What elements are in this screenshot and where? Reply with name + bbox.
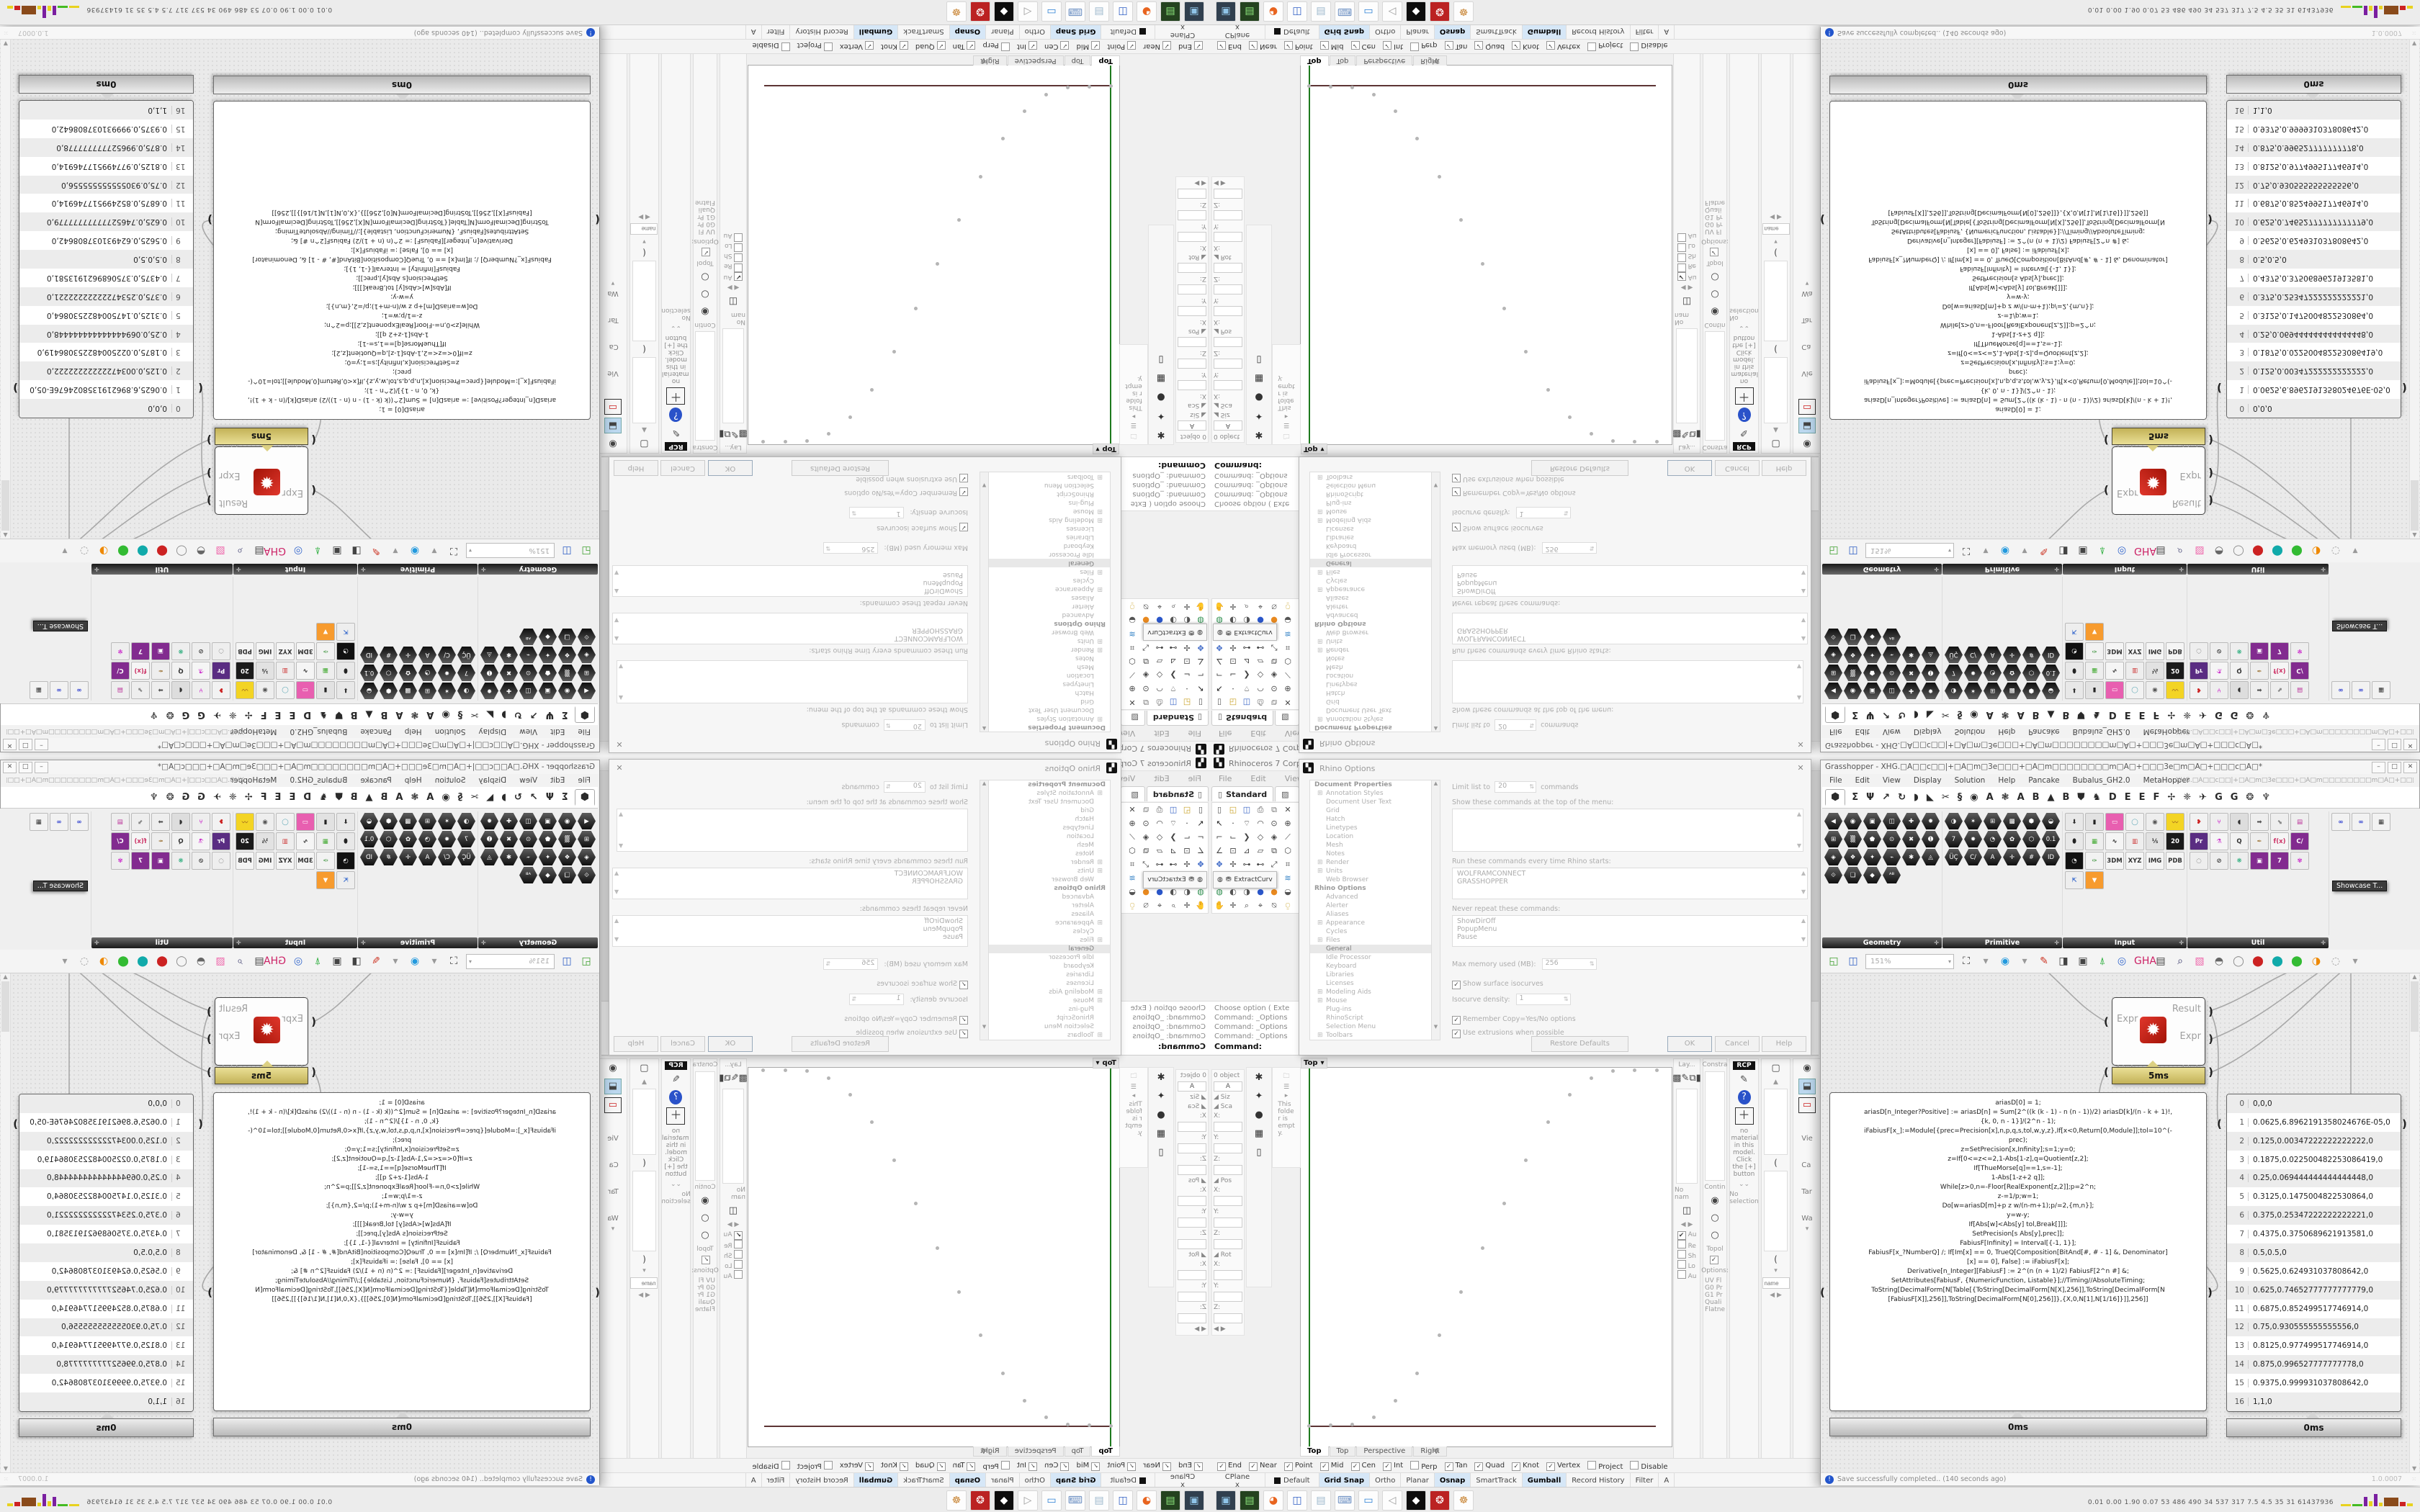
new-viewport-icon[interactable]: ✛ [1433,56,1439,64]
boxedit-item[interactable] [1214,380,1242,390]
expand-icon[interactable]: ⊞ [1096,789,1103,798]
layers-tool-icon[interactable]: ▩ [739,428,748,439]
tree-item[interactable]: Web Browser [989,628,1110,636]
chevrons-icon[interactable]: ⌄⌄ [1739,1181,1749,1188]
boxedit-item[interactable]: Y: [1178,371,1206,378]
gh-menu-item[interactable]: View [1883,727,1901,736]
component-icon[interactable]: ∿ [2105,662,2124,680]
viewport-point[interactable] [1590,432,1593,436]
boxedit-item[interactable]: ◢ Siz [1214,1094,1242,1101]
component-icon[interactable]: ▮ [316,813,335,831]
gh-category-tab[interactable]: ◗ [1912,708,1920,721]
component-icon[interactable]: PDB [2166,852,2184,870]
component-icon[interactable]: ID [2042,849,2060,865]
panel-icon[interactable]: ● [1154,1108,1168,1122]
tree-item[interactable]: Libraries [989,971,1110,979]
expand-icon[interactable]: ⊞ [1317,996,1324,1005]
component-icon[interactable]: ❥ [212,813,230,831]
component-icon[interactable]: ▣ [2250,642,2269,660]
tree-item[interactable]: Grid [989,697,1110,706]
rhino-tool-icon[interactable]: ◠ [1153,682,1166,695]
component-icon[interactable]: # [2022,849,2040,865]
boxedit-item[interactable] [1178,1196,1206,1206]
radio-icon[interactable]: ○ [1707,269,1723,284]
gh-category-tab[interactable]: ◣ [485,791,495,804]
viewport-point[interactable] [979,175,982,179]
never-repeat-command[interactable]: Pause [613,571,963,579]
component-icon[interactable]: 3DM [2105,642,2124,660]
rhino-tool-icon[interactable]: ⌐ [1213,831,1226,844]
gh-category-tab[interactable]: ↗ [1881,708,1891,721]
gh-category-tab[interactable]: ↗ [529,791,539,804]
data-row[interactable]: 130.8125,0.977499517746914,0 [2227,157,2401,176]
chevron-down-icon[interactable]: ▾ [1095,445,1099,453]
checkbox[interactable]: ✓ [1546,1462,1555,1471]
taskbar-app-icon[interactable]: ▤ [1311,1490,1331,1511]
osnap-toggle[interactable]: ✓Vertex [1546,1462,1580,1471]
component-icon[interactable]: 7 [457,831,475,847]
checkbox[interactable] [781,1461,790,1470]
rhino-menu-item[interactable]: File [1188,729,1201,739]
rhino-tool-icon[interactable]: ⤢ [1139,641,1152,654]
checkbox[interactable]: ✓ [865,42,874,50]
dropdown-icon[interactable]: ▾ [1774,238,1778,245]
rhino-tool-icon[interactable]: ◇ [1254,831,1267,844]
gh-menu-item[interactable]: File [578,727,591,736]
window-button[interactable]: □ [2388,762,2401,773]
rhino-tool-icon[interactable]: ✋ [1194,899,1207,912]
rhino-toolbar-tab[interactable]: ▨ [1121,786,1145,801]
component-icon[interactable]: ◀ [1824,683,1842,699]
data-row[interactable]: 30.1875,0.022500482253086419,0 [2227,343,2401,362]
data-panel[interactable]: 00,0,010.0625,6.8962191358024676E-05,020… [19,100,194,418]
component-icon[interactable]: ◈ [578,647,596,663]
gh-menu-item[interactable]: Display [478,727,506,736]
data-row[interactable]: 50.3125,0.1475004822530864,0 [19,306,193,325]
gh-category-tab[interactable]: G [181,708,192,721]
data-row[interactable]: 100.625,0.74652777777777779,0 [19,1281,193,1300]
rhino-tool-icon[interactable]: ∠ [1213,845,1226,858]
checkbox[interactable]: ✓ [865,1462,874,1471]
boxedit-item[interactable] [1178,189,1206,199]
tree-item[interactable]: ⊞Toolbars [1310,472,1431,481]
rhino-tool-icon[interactable]: ⤢ [1268,858,1281,871]
dropdown-icon[interactable]: ▾ [1948,548,1951,554]
rhino-toolbar-tab[interactable]: ▨ [1121,711,1145,726]
tree-item[interactable]: Linetypes [1310,824,1431,832]
save-icon[interactable]: ◫ [725,294,741,308]
tree-item[interactable]: Document Properties [1310,780,1431,789]
osnap-toggle[interactable]: ✓End [1178,1462,1203,1471]
component-icon[interactable]: ✒ [151,832,170,850]
checkbox[interactable]: ✓ [1474,42,1483,50]
radio-icon[interactable]: ○ [1707,1228,1723,1243]
name-input[interactable] [631,223,658,235]
window-button[interactable]: ✕ [3,762,17,773]
tree-item[interactable]: Location [1310,832,1431,841]
input-grip-link[interactable]: ( [2104,1066,2109,1079]
tree-item[interactable]: Mesh [1310,662,1431,671]
cancel-button[interactable]: Cancel [1715,460,1760,476]
data-panel-output-grip[interactable]: ) [2402,382,2407,395]
output-port-result[interactable]: Result [219,498,248,508]
checkbox[interactable]: ✓ [959,474,968,482]
viewport-point[interactable] [1329,1423,1332,1427]
component-icon[interactable]: ▣ [151,852,170,870]
viewport-point[interactable] [1415,137,1419,140]
monitor-icon[interactable]: ▢ [1768,436,1784,451]
expand-group-icon[interactable]: ✛ [481,937,486,948]
boxedit-item[interactable] [1178,1239,1206,1249]
component-icon[interactable]: # [2022,647,2040,663]
camera-icon[interactable]: ⬓ [604,1079,622,1094]
radio-icon[interactable]: ○ [697,1228,713,1243]
never-repeat-command[interactable]: ShowDirOff [1457,587,1807,595]
data-row[interactable]: 80.5,0.5,0 [19,250,193,269]
viewport-tab[interactable]: Top [1330,55,1356,66]
rhino-menu-item[interactable]: File [1219,774,1232,783]
boxedit-item[interactable]: 0 object [1214,433,1242,440]
component-icon[interactable]: ❏ [558,629,576,645]
data-panel-input-grip[interactable]: ( [2217,1117,2222,1130]
component-icon[interactable]: ◉ [558,813,576,829]
restore-defaults-button[interactable]: Restore Defaults [1531,1036,1628,1052]
gh-category-tab[interactable]: Σ [1850,791,1860,804]
osnap-toggle[interactable]: Perp [1410,1461,1437,1471]
boxedit-item[interactable] [1214,1122,1242,1132]
component-icon[interactable]: ◔ [336,852,355,870]
output-port-expr[interactable]: Expr [219,1031,241,1042]
boxedit-item[interactable]: ◢ Rot [1214,1251,1242,1259]
rhino-toolbar-tab[interactable]: ▯Standard [1147,711,1209,726]
component-icon[interactable]: ❥ [2190,813,2208,831]
tree-scrollbar[interactable]: ▲▼ [1431,780,1440,1040]
data-row[interactable]: 60.375,0.25347222222222221,0 [2227,287,2401,306]
gh-category-tab[interactable]: ↻ [513,708,524,721]
isocurve-density-input[interactable]: 1⇅ [849,994,904,1005]
osnap-toggle[interactable]: ✓Vertex [840,42,874,51]
rhino-tool-icon[interactable]: ⬡ [1126,654,1139,667]
tree-item[interactable]: Hatch [989,815,1110,824]
expand-group-icon[interactable]: ✛ [1934,564,1939,575]
dialog-titlebar[interactable]: ▚ Rhino Options [609,760,1121,777]
isocurves-checkbox-row[interactable]: ✓Show surface isocurves [614,523,968,532]
expand-icon[interactable]: ⊞ [1096,988,1103,996]
limit-input[interactable]: 20⇅ [884,719,926,731]
toolbar-icon[interactable]: ◨ [2056,544,2071,558]
component-icon[interactable]: 7 [1945,831,1963,847]
never-repeat-command[interactable]: Pause [613,933,963,941]
spinner-icon[interactable]: ⇅ [1529,722,1534,729]
input-grip-expr[interactable]: ( [2104,1015,2109,1028]
boxedit-item[interactable]: ◢ Pos [1178,328,1206,335]
boxedit-item[interactable]: ◢ Pos [1178,1177,1206,1184]
tree-item[interactable]: ⊞Appearance [989,919,1110,927]
ok-button[interactable]: OK [1667,460,1712,476]
checkbox[interactable]: ✓ [1351,1462,1360,1471]
taskbar-app-icon[interactable]: ❂ [1430,1,1450,22]
viewport-point[interactable] [1568,1093,1572,1097]
gh-category-tab[interactable]: ◣ [1925,708,1935,721]
checkbox[interactable]: ✓ [937,1462,946,1471]
component-icon[interactable]: ▮ [316,681,335,699]
component-icon[interactable]: ⟐ [578,867,596,883]
component-icon[interactable]: ❥ [2190,681,2208,699]
data-row[interactable]: 150.9375,0.999931037808642,0 [19,120,193,138]
tree-item[interactable]: Rhino Options [1310,884,1431,893]
component-icon[interactable]: ◒ [360,683,378,699]
panel-icon[interactable]: ● [1252,1108,1266,1122]
gh-titlebar[interactable]: Grasshopper - XHG.□A□□c□□|+□A□m□3e□□□+□A… [1,738,599,752]
tree-item[interactable]: Idle Processor [989,550,1110,559]
toolbar-icon[interactable]: ▾ [2348,954,2362,968]
component-icon[interactable]: ◫ [1883,813,1901,829]
expand-icon[interactable]: ⊞ [1317,858,1324,867]
viewport-point[interactable] [1001,137,1005,140]
component-icon[interactable]: ✶ [1964,683,1982,699]
checkbox[interactable] [734,1270,743,1279]
tree-item[interactable]: Notes [1310,850,1431,858]
component-icon[interactable]: ⬡ [380,665,398,681]
component-icon[interactable]: # [380,849,398,865]
boxedit-item[interactable]: ◢ Pos [1214,1177,1242,1184]
viewport-point[interactable] [784,1068,787,1072]
output-grip-expr[interactable]: ) [2208,467,2213,480]
gh-category-tab[interactable]: ❈ [2182,791,2192,804]
component-icon[interactable]: ✾ [111,642,130,660]
scrollbar-thumb[interactable] [1,981,9,1032]
taskbar-app-icon[interactable]: ▤ [1160,1,1180,22]
tree-item[interactable]: Web Browser [1310,628,1431,636]
radio-icon[interactable]: ◉ [1707,304,1723,318]
toolbar-icon[interactable]: ⌕ [233,544,247,558]
dialog-titlebar[interactable]: ▚ Rhino Options [1299,735,1811,752]
component-icon[interactable]: ⇱ [336,623,355,641]
component-icon[interactable]: ▼ [316,623,335,641]
rhino-tool-icon[interactable]: ⌐ [1194,668,1207,681]
rhino-tool-icon[interactable]: ⍉ [1268,600,1281,613]
panel-icon[interactable]: ✦ [1154,1089,1168,1104]
layers-tool-icon[interactable]: ⧉ [1689,1073,1695,1084]
pager[interactable]: ◀ ▶ [638,1292,650,1299]
component-icon[interactable]: C/ [111,662,130,680]
component-icon[interactable]: ➊ [480,831,498,847]
rhino-tool-icon[interactable]: ⧉ [1268,845,1281,858]
expand-icon[interactable]: ⊞ [1317,1031,1324,1040]
gh-menu-item[interactable]: Bubalus_GH2.0 [290,727,347,736]
component-icon[interactable]: ❖ [558,647,576,663]
component-icon[interactable]: ◔ [418,831,436,847]
boxedit-item[interactable]: X: [1178,392,1206,400]
gh-category-tab[interactable]: B [379,791,389,804]
viewport-point[interactable] [1372,93,1376,96]
viewport-tab[interactable]: Top [1091,55,1120,66]
checkbox[interactable] [1001,42,1010,51]
gh-menu-item[interactable]: File [1829,727,1842,736]
component-icon[interactable]: ᴬᴮ [519,867,537,883]
toolbar-icon[interactable]: ✎ [369,954,383,968]
layers-tool-icon[interactable]: ✎ [731,428,739,439]
never-repeat-command[interactable]: Pause [1457,571,1807,579]
color-wheel-icon[interactable]: ◉ [1799,1061,1815,1076]
checkbox[interactable] [781,42,790,51]
toolbar-icon[interactable]: ▤ [252,954,266,968]
gh-category-tab[interactable]: D [2107,708,2118,721]
osnap-toggle[interactable]: ✓Mid [1320,42,1344,51]
toolbar-icon[interactable]: ▾ [58,954,72,968]
taskbar-app-icon[interactable]: ◕ [1137,1,1157,22]
component-icon[interactable]: A [418,849,436,865]
save-file-icon[interactable]: ◫ [1846,544,1860,558]
viewport-point[interactable] [1307,85,1311,89]
rhino-tool-icon[interactable]: ◈ [1139,831,1152,844]
tree-item[interactable]: Cycles [989,576,1110,585]
data-row[interactable]: 00,0,0 [19,1094,193,1113]
component-icon[interactable]: ✚ [1902,683,1920,699]
tree-item[interactable]: Linetypes [1310,680,1431,688]
radio-icon[interactable]: ○ [1707,287,1723,301]
menu-icon[interactable]: ☰ [1131,1084,1137,1091]
osnap-toggle[interactable]: ✓Int [1383,1462,1403,1471]
rhino-tool-icon[interactable]: ⧉ [1139,804,1152,816]
component-icon[interactable]: ⬊ [2270,813,2289,831]
mathematica-component[interactable]: ( ( ) ) ) Expr Link Result Expr Link ✹ [2112,997,2205,1066]
component-icon[interactable]: ◔ [1984,831,2002,847]
layers-tool-icon[interactable]: ✎ [1681,1073,1689,1084]
tree-item[interactable]: Grid [1310,806,1431,815]
gh-canvas[interactable]: ( ( ) ) ) Expr Link Result Expr Link ✹ 5… [1821,40,2420,539]
toolbar-icon[interactable]: ▤ [2154,954,2168,968]
boxedit-item[interactable]: ◢ Pos [1214,328,1242,335]
rhino-tool-icon[interactable]: ✋ [1213,600,1226,613]
mathematica-component[interactable]: ( ( ) ) ) Expr Link Result Expr Link ✹ [2112,446,2205,515]
constraint-list[interactable] [695,1071,715,1181]
toolbar-icon[interactable]: ⬤ [2251,954,2265,968]
rhino-tool-icon[interactable]: ⊶ [1240,641,1253,654]
gh-category-tab[interactable]: A [2016,791,2026,804]
tree-item[interactable]: Plug-ins [989,1005,1110,1014]
rhino-tool-icon[interactable]: ≋ [1126,872,1139,885]
extract-curve-popup[interactable]: ◍ ⛃ ExtractCurv [1213,871,1277,888]
tree-item[interactable]: RhinoScript [989,1014,1110,1022]
component-icon[interactable]: ⊞ [1984,813,2002,829]
data-panel-output-grip[interactable]: ) [13,382,18,395]
tree-item[interactable]: Rhino Options [1310,619,1431,628]
gh-category-tab[interactable]: ✈ [212,708,223,721]
gh-category-tab[interactable]: § [1956,791,1964,804]
component-icon[interactable]: ✶ [1964,813,1982,829]
component-icon[interactable]: ▣ [2250,852,2269,870]
taskbar-app-icon[interactable]: ▤ [1240,1,1260,22]
component-icon[interactable]: ⚗ [192,832,210,850]
restore-defaults-button[interactable]: Restore Defaults [792,460,889,476]
tree-item[interactable]: Keyboard [1310,962,1431,971]
component-icon[interactable]: ◯ [2125,813,2144,831]
tree-item[interactable]: General [989,559,1110,567]
component-icon[interactable]: ∞ [50,681,68,699]
tree-item[interactable]: Document Properties [989,780,1110,789]
add-material-button[interactable]: ＋ [667,1107,686,1125]
viewport-tab[interactable]: Right [1413,55,1446,66]
taskbar-app-icon[interactable]: ◁ [1382,1490,1402,1511]
component-icon[interactable]: ⬟ [1863,831,1881,847]
rhino-tool-icon[interactable]: ⍉ [1268,899,1281,912]
component-icon[interactable]: 3DM [2105,852,2124,870]
component-icon[interactable]: XYZ [2125,852,2144,870]
data-panel[interactable]: 00,0,010.0625,6.8962191358024676E-05,020… [2226,1094,2401,1412]
component-icon[interactable]: ◉ [1844,683,1862,699]
tree-item[interactable]: ⊞Toolbars [989,1031,1110,1040]
data-row[interactable]: 130.8125,0.977499517746914,0 [19,1336,193,1355]
cancel-button[interactable]: Cancel [660,1036,705,1052]
rhino-tool-icon[interactable]: ⍉ [1139,899,1152,912]
toolbar-icon[interactable]: ✎ [369,544,383,558]
viewport-point[interactable] [1066,86,1070,89]
panel-checkbox-row[interactable]: Lo [724,242,743,252]
rhino-tool-icon[interactable]: ◫ [1240,696,1253,708]
gh-menu-item[interactable]: Bubalus_GH2.0 [2073,776,2130,785]
component-icon[interactable]: ∞ [2331,813,2350,831]
isocurves-checkbox-row[interactable]: ✓Show surface isocurves [614,980,968,989]
component-icon[interactable]: ⚗ [2210,832,2228,850]
layers-tool-icon[interactable]: ▩ [739,1073,748,1084]
expand-icon[interactable]: ⊞ [1096,472,1103,481]
component-icon[interactable]: 0.1 [360,831,378,847]
viewport-point[interactable] [805,1069,809,1073]
checkbox[interactable]: ✓ [1512,1462,1520,1471]
osnap-toggle[interactable]: ✓Knot [881,42,908,51]
viewport-top[interactable] [748,65,1120,445]
component-icon[interactable]: ◒ [2042,683,2060,699]
taskbar-app-icon[interactable]: ▣ [1216,1490,1236,1511]
caret-icon[interactable]: ▸ [1285,413,1289,420]
data-row[interactable]: 20.125,0.00347222222222222,0 [2227,361,2401,380]
checkbox[interactable] [1630,42,1639,51]
gh-menu-item[interactable]: Edit [1855,727,1870,736]
layers-tool-icon[interactable]: ▮ [1696,428,1701,439]
toolbar-icon[interactable]: ◯ [174,954,189,968]
tree-item[interactable]: Aliases [989,593,1110,602]
toolbar-icon[interactable]: ⍋ [2095,954,2110,968]
gh-category-tab[interactable]: ❈ [228,791,238,804]
component-icon[interactable]: ∿ [296,662,315,680]
data-row[interactable]: 161,1,0 [2227,1392,2401,1411]
menu-icon[interactable]: ☰ [1283,421,1289,428]
component-icon[interactable]: ❏ [1844,867,1862,883]
tree-item[interactable]: Alerter [1310,602,1431,611]
rhino-tool-icon[interactable]: ⊡ [1180,845,1193,858]
boxedit-item[interactable] [1178,1270,1206,1280]
tree-item[interactable]: General [1310,945,1431,953]
tree-item[interactable]: Grid [1310,697,1431,706]
osnap-toggle[interactable]: ✓End [1217,1462,1242,1471]
tree-item[interactable]: Mesh [1310,841,1431,850]
toolbar-icon[interactable]: ⬤ [155,544,169,558]
mathematica-component[interactable]: ( ( ) ) ) Expr Link Result Expr Link ✹ [215,997,308,1066]
gh-category-tab[interactable]: ◉ [440,708,451,721]
component-icon[interactable]: C/ [1964,647,1982,663]
tree-item[interactable]: Linetypes [989,824,1110,832]
gh-menu-item[interactable]: Pancake [2028,776,2059,785]
component-icon[interactable]: ◔ [2065,852,2084,870]
eraser-icon[interactable]: ✎ [668,425,684,439]
tree-item[interactable]: ⊞Render [1310,858,1431,867]
toolbar-icon[interactable]: ◨ [2056,954,2071,968]
boxedit-item[interactable] [1178,1218,1206,1228]
component-icon[interactable]: ◆ [539,867,557,883]
osnap-toggle[interactable]: ✓Quad [1474,42,1505,51]
canvas-scrollbar[interactable]: ▲▼ [2409,973,2419,1472]
